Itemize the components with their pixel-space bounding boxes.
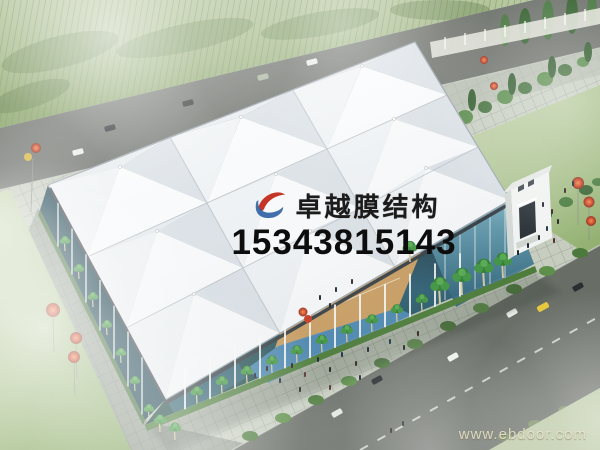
membrane-structure-scene xyxy=(0,0,600,450)
mist-overlay xyxy=(0,0,600,450)
architectural-rendering-image: 卓越膜结构 15343815143 www.ebdoor.com xyxy=(0,0,600,450)
